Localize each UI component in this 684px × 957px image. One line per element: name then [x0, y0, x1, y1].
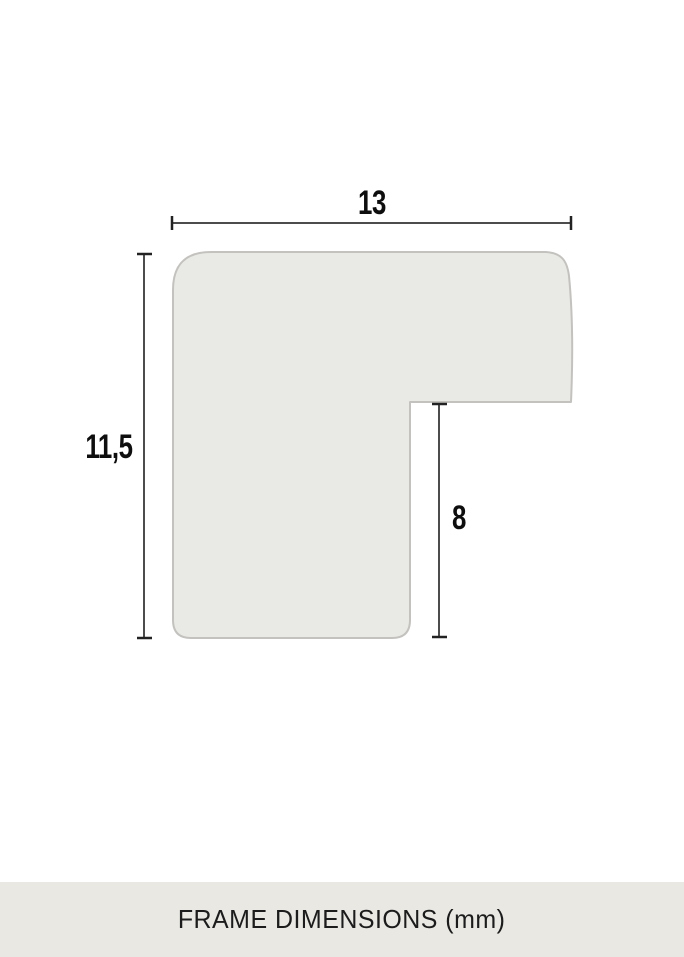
width-dimension-label: 13	[342, 186, 403, 220]
footer-caption: FRAME DIMENSIONS (mm)	[178, 904, 506, 935]
footer-bar: FRAME DIMENSIONS (mm)	[0, 882, 684, 957]
height-dimension-label: 11,5	[79, 430, 140, 464]
rebate-dimension-label: 8	[429, 501, 490, 535]
frame-profile-diagram: 13 11,5 8 FRAME DIMENSIONS (mm)	[0, 0, 684, 957]
profile-shape	[173, 252, 572, 638]
profile-diagram-svg	[0, 0, 684, 957]
